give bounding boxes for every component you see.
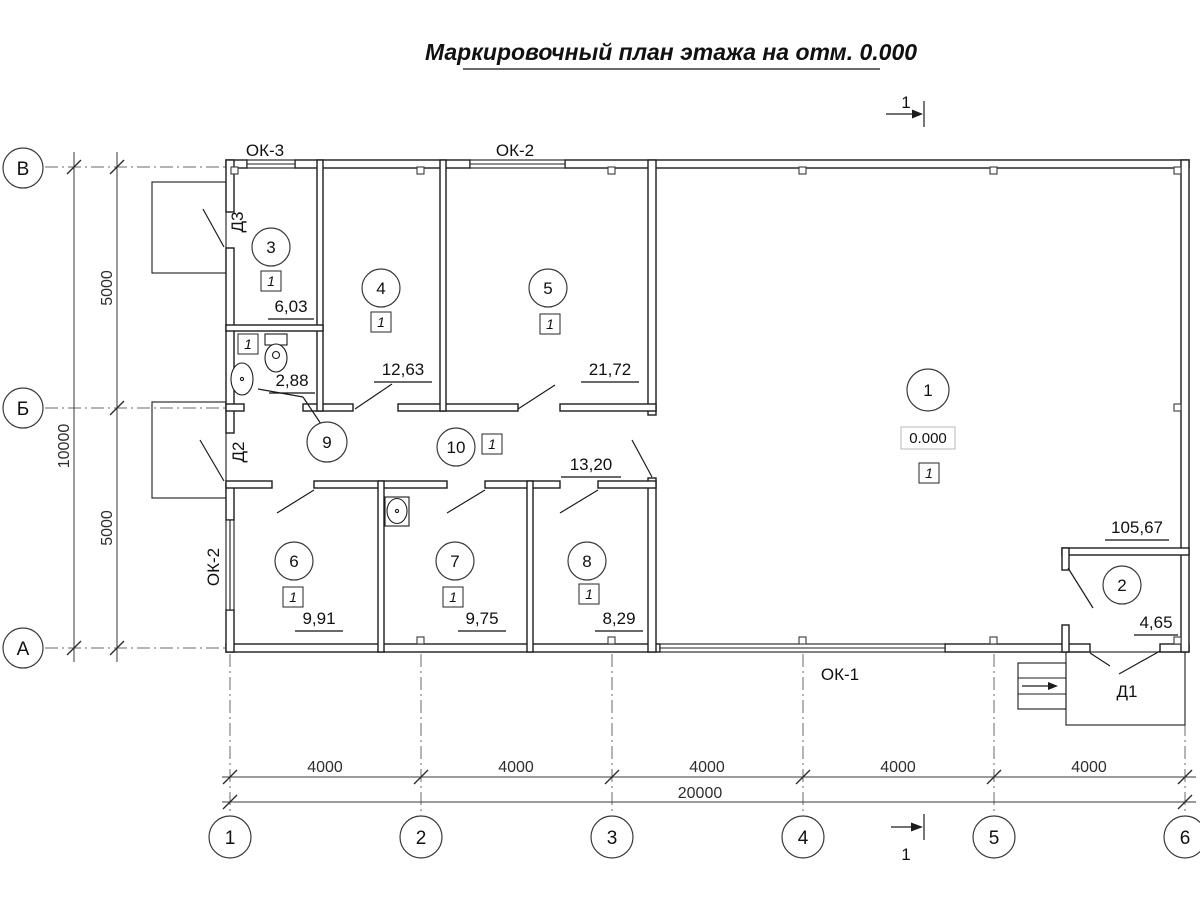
room7-area: 9,75 — [465, 609, 498, 628]
room8-area: 8,29 — [602, 609, 635, 628]
dim-5000-upper: 5000 — [99, 270, 116, 306]
door-tambour-leaf — [1068, 568, 1093, 608]
dim-10000: 10000 — [56, 424, 73, 469]
room-numbers: 1 2 3 4 5 6 7 8 9 10 — [252, 228, 1141, 604]
stairs-arrow-icon — [1048, 682, 1058, 690]
floor-plan-drawing: Маркировочный план этажа на отм. 0.000 1 — [0, 0, 1200, 900]
room6-number: 6 — [289, 552, 298, 571]
porch-d3 — [152, 182, 226, 273]
row-axis-lines — [45, 167, 226, 648]
axis-col-3-label: 3 — [607, 828, 618, 849]
room1-floor-marker: 1 — [925, 465, 933, 481]
room6-floor-marker: 1 — [289, 589, 297, 605]
label-d1: Д1 — [1117, 682, 1138, 701]
section-mark-top: 1 — [886, 93, 924, 127]
door-room8-leaf — [560, 490, 598, 513]
axis-col-4-label: 4 — [798, 828, 809, 849]
room3-number: 3 — [266, 238, 275, 257]
room5-number: 5 — [543, 279, 552, 298]
door-d1-leaf-right — [1119, 651, 1160, 674]
label-d2: Д2 — [229, 442, 248, 463]
room10-floor-marker: 1 — [488, 436, 496, 452]
room10-number: 10 — [447, 438, 466, 457]
left-dimensions: 5000 5000 10000 — [56, 152, 124, 662]
room2-area: 4,65 — [1139, 613, 1172, 632]
axis-row-v-label: В — [17, 159, 30, 180]
dim-bay-5: 4000 — [1071, 759, 1107, 776]
section-mark-bottom-label: 1 — [901, 845, 910, 864]
room3-area: 6,03 — [274, 297, 307, 316]
partition-room3-right — [317, 160, 323, 411]
door-d2-leaf — [200, 440, 224, 481]
partition-room3-wc — [226, 325, 323, 331]
tambour-top-wall — [1062, 548, 1189, 555]
room4-number: 4 — [376, 279, 385, 298]
partition-room6-7 — [378, 481, 384, 652]
interior-walls — [226, 160, 1189, 652]
column-axis-bubbles: 1 2 3 4 5 6 — [209, 816, 1200, 858]
room7-number: 7 — [450, 552, 459, 571]
room9-number: 9 — [322, 433, 331, 452]
axis-col-6-label: 6 — [1180, 828, 1191, 849]
label-ok2-top: ОК-2 — [496, 141, 534, 160]
elevation-mark: 0.000 — [901, 427, 955, 449]
window-ok2-top — [470, 160, 565, 168]
window-ok1-bottom — [660, 644, 945, 652]
dim-bay-3: 4000 — [689, 759, 725, 776]
partition-room7-8 — [527, 481, 533, 652]
room8-floor-marker: 1 — [585, 586, 593, 602]
label-ok3: ОК-3 — [246, 141, 284, 160]
section-arrow-icon — [912, 110, 923, 119]
wc-sink-icon — [231, 363, 253, 395]
page-title: Маркировочный план этажа на отм. 0.000 — [425, 39, 917, 65]
room5-floor-marker: 1 — [546, 316, 554, 332]
room3-floor-marker: 1 — [267, 273, 275, 289]
room1-number: 1 — [923, 381, 932, 400]
room10-area: 13,20 — [570, 455, 613, 474]
room-areas: 105,67 4,65 6,03 12,63 21,72 9,91 9,75 8… — [268, 297, 1178, 635]
axis-col-2-label: 2 — [416, 828, 427, 849]
door-corridor-hall-leaf — [632, 440, 652, 477]
room5-area: 21,72 — [589, 360, 632, 379]
label-ok1: ОК-1 — [821, 665, 859, 684]
room8-number: 8 — [582, 552, 591, 571]
door-d3-leaf — [203, 209, 224, 247]
room7-sink-icon — [385, 497, 409, 526]
dim-total-width: 20000 — [678, 785, 723, 802]
room4-floor-marker: 1 — [377, 314, 385, 330]
door-room7-leaf — [447, 490, 485, 513]
window-ok2-left — [226, 520, 234, 610]
axis-row-b-label: Б — [17, 399, 29, 420]
section-mark-bottom: 1 — [891, 814, 924, 864]
door-room6-leaf — [277, 490, 314, 513]
label-d3: Д3 — [228, 212, 247, 233]
drawing-title: Маркировочный план этажа на отм. 0.000 — [425, 39, 917, 69]
axis-column-markers — [231, 167, 1181, 644]
door-d1-leaf-left — [1090, 653, 1110, 666]
dim-bay-4: 4000 — [880, 759, 916, 776]
row-axis-bubbles: В Б А — [3, 148, 43, 668]
bottom-dimensions: 4000 4000 4000 4000 4000 20000 — [222, 759, 1196, 809]
axis-col-5-label: 5 — [989, 828, 1000, 849]
room2-number: 2 — [1117, 576, 1126, 595]
entry-porch — [1018, 652, 1185, 725]
floor-plan-canvas: Маркировочный план этажа на отм. 0.000 1 — [0, 0, 1200, 900]
section-arrow-icon-bottom — [911, 823, 923, 832]
room1-area: 105,67 — [1111, 518, 1163, 537]
toilet-icon — [265, 334, 287, 372]
window-ok3 — [247, 160, 295, 168]
room6-area: 9,91 — [302, 609, 335, 628]
door-room4-leaf — [355, 384, 392, 409]
opening-labels: ОК-3 ОК-2 ОК-1 ОК-2 Д3 Д2 Д1 — [204, 141, 1137, 701]
porch-d2 — [152, 402, 226, 498]
partition-room4-5 — [440, 160, 446, 411]
room7-floor-marker: 1 — [449, 589, 457, 605]
dim-bay-1: 4000 — [307, 759, 343, 776]
axis-row-a-label: А — [17, 639, 30, 660]
exterior-walls — [226, 160, 1189, 652]
elevation-value: 0.000 — [909, 430, 947, 447]
room9-area: 2,88 — [275, 371, 308, 390]
door-room5-leaf — [518, 385, 555, 409]
axis-col-1-label: 1 — [225, 828, 236, 849]
room9-floor-marker: 1 — [244, 336, 252, 352]
label-ok2-left: ОК-2 — [204, 548, 223, 586]
section-mark-top-label: 1 — [901, 93, 910, 112]
dim-bay-2: 4000 — [498, 759, 534, 776]
room4-area: 12,63 — [382, 360, 425, 379]
dim-5000-lower: 5000 — [99, 510, 116, 546]
